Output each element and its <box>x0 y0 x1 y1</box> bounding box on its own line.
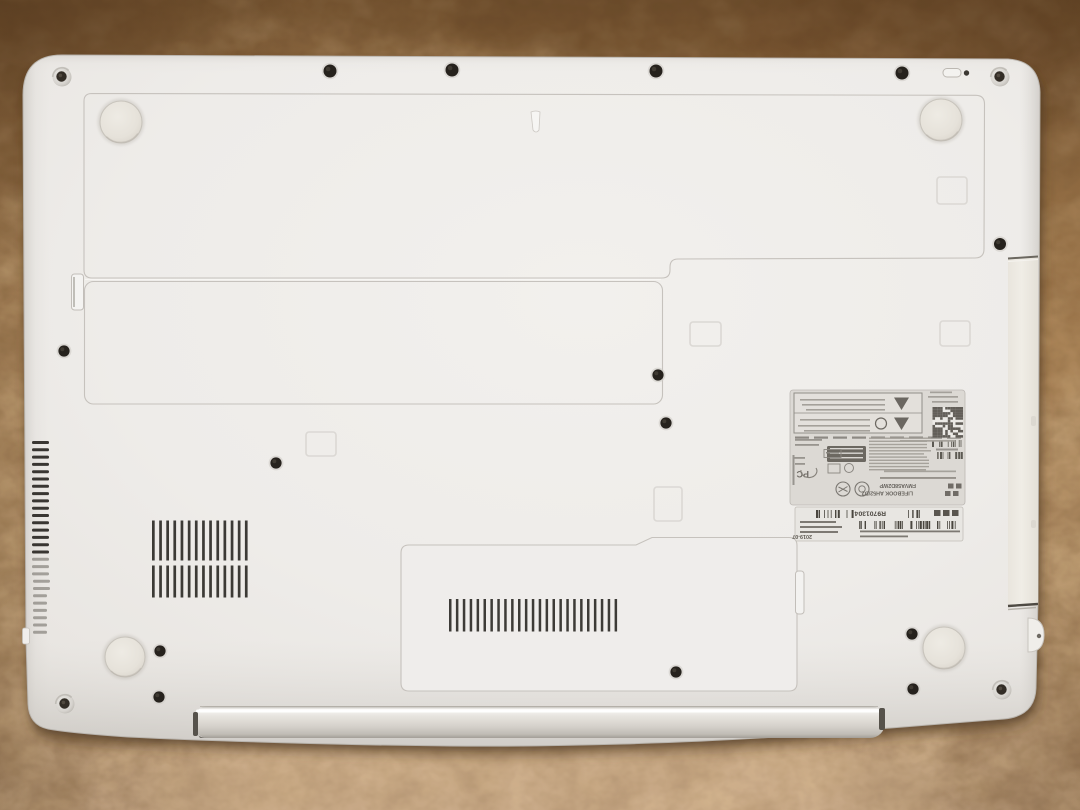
svg-text:LIFEBOOK AH52/D2: LIFEBOOK AH52/D2 <box>862 490 913 496</box>
svg-text:R9701304: R9701304 <box>854 510 886 517</box>
svg-text:FMVA58D2WP: FMVA58D2WP <box>879 482 916 488</box>
svg-text:2019-07: 2019-07 <box>792 533 812 539</box>
